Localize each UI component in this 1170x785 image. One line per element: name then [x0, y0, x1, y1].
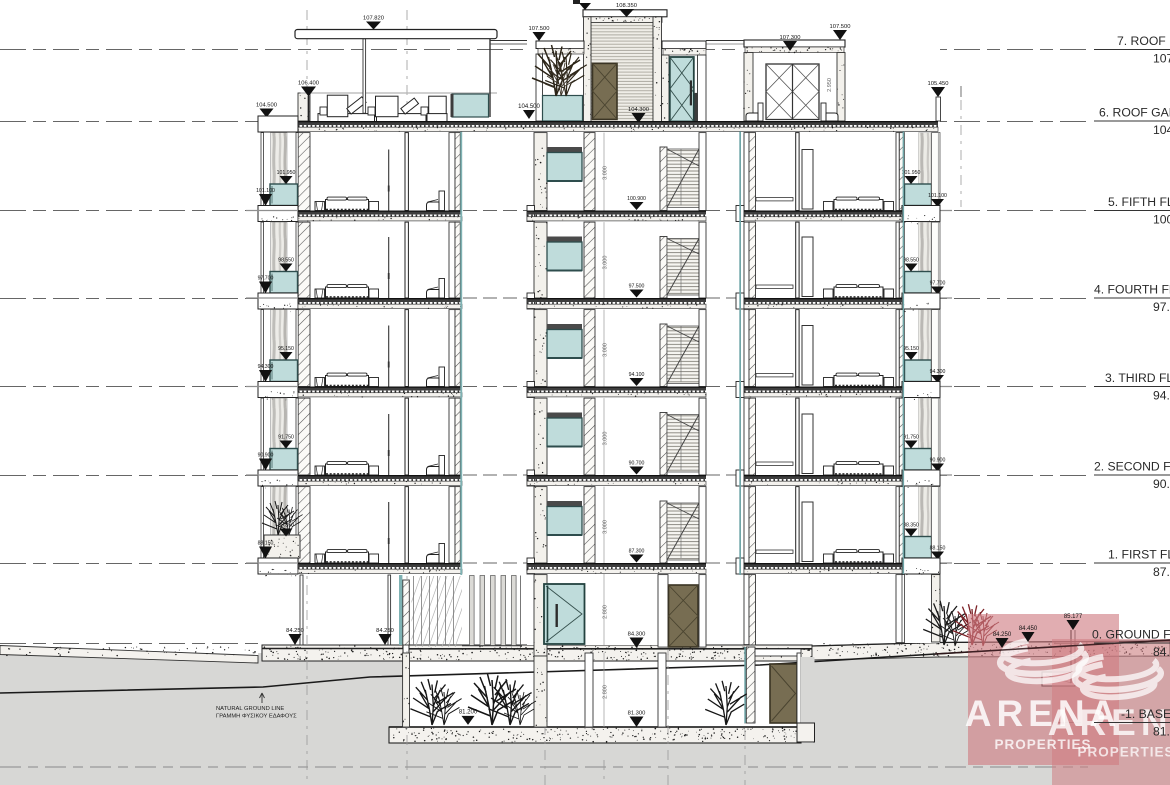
svg-text:104.500: 104.500 [1153, 123, 1170, 137]
svg-text:7. ROOF FLOOR: 7. ROOF FLOOR [1117, 34, 1170, 48]
svg-text:84.250: 84.250 [1153, 645, 1170, 659]
svg-text:5. FIFTH FLOOR: 5. FIFTH FLOOR [1108, 195, 1170, 209]
svg-text:95.150: 95.150 [278, 346, 294, 352]
svg-text:3.000: 3.000 [603, 432, 609, 446]
svg-text:107.500: 107.500 [1153, 52, 1170, 66]
svg-text:6. ROOF GARDEN: 6. ROOF GARDEN [1099, 106, 1170, 120]
svg-text:104.500: 104.500 [256, 102, 277, 108]
svg-text:100.900: 100.900 [627, 196, 646, 202]
svg-text:107.500: 107.500 [529, 26, 550, 32]
svg-text:2.800: 2.800 [603, 685, 609, 699]
svg-text:81.300: 81.300 [628, 710, 646, 716]
svg-text:91.750: 91.750 [278, 434, 294, 440]
svg-text:107.500: 107.500 [830, 24, 851, 30]
svg-text:90.700: 90.700 [1153, 477, 1170, 491]
svg-text:88.150: 88.150 [258, 540, 274, 546]
svg-text:3.000: 3.000 [603, 166, 609, 180]
svg-text:81.200: 81.200 [459, 710, 478, 716]
svg-text:87.300: 87.300 [1153, 565, 1170, 579]
svg-text:101.950: 101.950 [277, 170, 296, 176]
svg-text:ΓΡΑΜΜΗ ΦΥΣΙΚΟΥ ΕΔΑΦΟΥΣ: ΓΡΑΜΜΗ ΦΥΣΙΚΟΥ ΕΔΑΦΟΥΣ [216, 714, 297, 720]
svg-text:98.550: 98.550 [903, 257, 919, 263]
svg-text:0. GROUND FLOOR: 0. GROUND FLOOR [1092, 628, 1170, 642]
svg-text:2.800: 2.800 [603, 605, 609, 619]
svg-text:107.300: 107.300 [780, 35, 801, 41]
svg-text:2.950: 2.950 [827, 78, 833, 92]
svg-text:84.300: 84.300 [628, 631, 646, 637]
svg-text:97.700: 97.700 [930, 280, 946, 286]
svg-text:84.250: 84.250 [993, 632, 1012, 638]
svg-text:100.900: 100.900 [1153, 213, 1170, 227]
svg-text:3.000: 3.000 [603, 256, 609, 270]
svg-text:3.000: 3.000 [603, 520, 609, 534]
svg-text:98.550: 98.550 [278, 257, 294, 263]
svg-text:101.950: 101.950 [902, 170, 921, 176]
svg-text:NATURAL GROUND LINE: NATURAL GROUND LINE [216, 706, 284, 712]
svg-text:90.700: 90.700 [629, 460, 645, 466]
svg-text:104.300: 104.300 [628, 107, 649, 113]
svg-text:84.250: 84.250 [376, 628, 394, 634]
svg-text:4. FOURTH FLOOR: 4. FOURTH FLOOR [1094, 283, 1170, 297]
svg-text:94.300: 94.300 [930, 369, 946, 375]
svg-text:81.300: 81.300 [1153, 725, 1170, 739]
svg-text:84.450: 84.450 [1019, 626, 1038, 632]
svg-text:88.350: 88.350 [903, 522, 919, 528]
svg-text:107.820: 107.820 [363, 15, 384, 21]
svg-text:101.100: 101.100 [928, 193, 947, 199]
svg-text:3. THIRD FLOOR: 3. THIRD FLOOR [1105, 371, 1170, 385]
svg-text:88.150: 88.150 [930, 545, 946, 551]
svg-text:97.700: 97.700 [258, 275, 274, 281]
svg-text:90.900: 90.900 [930, 457, 946, 463]
svg-text:101.100: 101.100 [256, 188, 275, 194]
svg-text:94.100: 94.100 [1153, 389, 1170, 403]
svg-text:2. SECOND FLOOR: 2. SECOND FLOOR [1094, 460, 1170, 474]
svg-text:95.150: 95.150 [903, 346, 919, 352]
svg-text:90.900: 90.900 [258, 452, 274, 458]
svg-text:106.400: 106.400 [298, 80, 319, 86]
svg-text:97.500: 97.500 [1153, 300, 1170, 314]
svg-text:97.500: 97.500 [629, 283, 645, 289]
svg-text:85.177: 85.177 [1064, 614, 1083, 620]
svg-text:94.100: 94.100 [629, 372, 645, 378]
svg-text:-1. BASEMENT: -1. BASEMENT [1121, 707, 1170, 721]
svg-text:PROPERTIES: PROPERTIES [1077, 745, 1170, 760]
svg-text:87.300: 87.300 [629, 548, 645, 554]
svg-text:91.750: 91.750 [903, 434, 919, 440]
svg-text:88.350: 88.350 [278, 522, 294, 528]
svg-text:84.250: 84.250 [286, 628, 304, 634]
svg-text:94.300: 94.300 [258, 364, 274, 370]
svg-text:3.000: 3.000 [603, 343, 609, 357]
svg-text:1. FIRST FLOOR: 1. FIRST FLOOR [1108, 548, 1170, 562]
svg-text:105.450: 105.450 [928, 81, 949, 87]
svg-text:104.500: 104.500 [518, 104, 540, 110]
svg-text:108.350: 108.350 [616, 3, 637, 9]
